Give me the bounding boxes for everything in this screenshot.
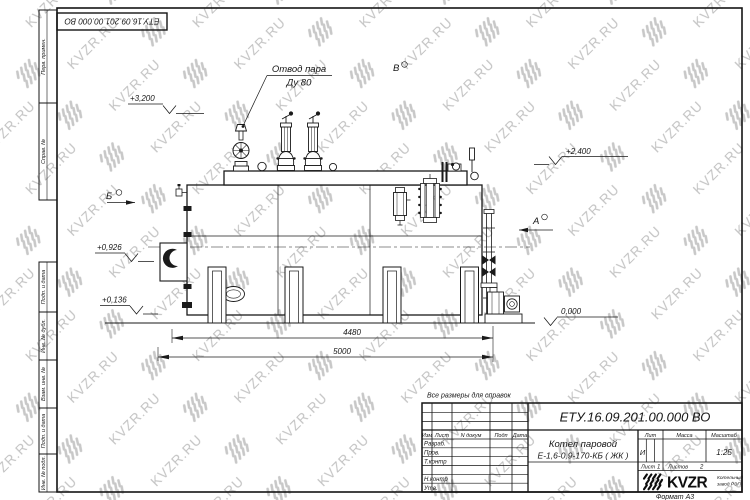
steam-outlet-valve	[233, 125, 249, 172]
role-utv: Утв.	[423, 486, 438, 492]
sheet-value: 1	[657, 465, 660, 471]
masshtab-label: Масштаб	[711, 433, 738, 439]
sheet-label: Лист	[640, 465, 656, 471]
view-marker-b: Б	[106, 190, 135, 205]
drawing-layer: Перв. примен. Справ. № Подп. и дата Инв.…	[0, 0, 750, 500]
view-a-arrow-icon	[519, 228, 528, 232]
dim-5000-label: 5000	[333, 347, 351, 356]
col-list: Лист	[434, 433, 450, 439]
product-type: Е-1,6-0,9-170-КБ ( ЖК )	[538, 451, 629, 461]
elevation-0136: +0,136	[100, 296, 158, 315]
margin-label-podp-data-2: Подп. и дата	[41, 414, 47, 448]
margin-label-perv-primen: Перв. примен.	[41, 38, 47, 75]
top-stamp: ЕТУ.16.09.201.00.000 ВО	[57, 13, 167, 30]
lit-value: И	[640, 448, 646, 457]
drum-vent-domes	[257, 162, 338, 171]
view-b-label: Б	[106, 191, 112, 202]
margin-label-inv-no-podl: Инв. № подл.	[41, 456, 47, 490]
role-razrab: Разраб.	[424, 442, 446, 448]
margin-column-labels: Перв. примен. Справ. № Подп. и дата Инв.…	[41, 38, 47, 490]
sheets-value: 2	[699, 465, 704, 471]
role-t-kontr: Т.контр	[424, 459, 447, 465]
kvzr-logo-icon	[644, 475, 662, 490]
steam-outlet-label-line2: Ду 80	[286, 78, 312, 89]
view-v-label: В	[393, 63, 400, 74]
col-data: Дата	[512, 433, 528, 439]
steam-outlet-callout: Отвод пара Ду 80	[242, 64, 332, 128]
kvzr-logo-sub1: Котельный	[717, 474, 743, 481]
title-block: ЕТУ.16.09.201.00.000 ВО Изм Лист N докум…	[422, 403, 743, 500]
elevation-0136-label: +0,136	[102, 296, 127, 305]
col-izm: Изм	[422, 433, 432, 439]
col-podp: Подп	[494, 433, 507, 439]
elevation-0000-label: 0,000	[561, 307, 582, 316]
dimension-4480: 4480	[158, 326, 493, 362]
support-leg-4	[461, 267, 479, 323]
elevation-0926-label: +0,926	[97, 243, 122, 252]
dim-4480-label: 4480	[343, 328, 361, 337]
role-prov: Пров.	[424, 451, 440, 457]
drawing-page: KVZR.RU	[0, 0, 750, 500]
title-block-doc-number: ЕТУ.16.09.201.00.000 ВО	[560, 410, 711, 425]
support-leg-2	[285, 267, 303, 323]
elevation-0000: 0,000	[544, 307, 618, 326]
support-leg-3	[383, 267, 401, 323]
dimension-5000: 5000	[158, 347, 493, 359]
burner	[160, 243, 187, 281]
elevation-0926: +0,926	[95, 243, 154, 262]
role-n-kontr: Н.контр	[424, 477, 448, 483]
format-label: Формат А3	[656, 494, 694, 500]
view-b-arrow-icon	[126, 200, 135, 204]
margin-label-podp-data-1: Подп. и дата	[41, 270, 47, 304]
safety-valve-1	[276, 111, 295, 170]
margin-label-vzam-inv-no: Взам. инв. №	[41, 367, 47, 401]
margin-label-sprav-no: Справ. №	[41, 139, 47, 164]
scale-value: 1:25	[716, 448, 732, 457]
lit-label: Лит	[644, 433, 657, 439]
top-stamp-doc-number: ЕТУ.16.09.201.00.000 ВО	[64, 17, 160, 26]
margin-label-inv-no-dubl: Инв. № дубл.	[41, 319, 47, 353]
feed-pump	[485, 288, 522, 324]
sheets-label: Листов	[667, 465, 688, 471]
kvzr-logo-sub2: завод РЭП	[716, 482, 741, 488]
view-marker-v: В	[393, 62, 407, 74]
elevation-3200: +3,200	[128, 94, 204, 114]
massa-label: Масса	[676, 433, 692, 439]
reference-note: Все размеры для справок	[427, 392, 512, 400]
elevation-2400: +2,400	[534, 147, 628, 165]
steam-outlet-label-line1: Отвод пара	[272, 64, 326, 75]
elevation-3200-label: +3,200	[130, 94, 155, 103]
view-a-label: А	[532, 216, 539, 227]
boiler-drawing	[105, 111, 535, 323]
annotations: Отвод пара Ду 80 +3,200 +2,400 +0,926 +0…	[95, 62, 628, 400]
safety-valve-2	[303, 111, 322, 170]
water-level-gauge-1	[394, 188, 411, 226]
elevation-2400-label: +2,400	[566, 147, 591, 156]
col-n-dokum: N докум	[461, 433, 482, 439]
view-marker-a: А	[519, 214, 553, 232]
support-leg-1	[208, 267, 226, 323]
kvzr-logo-text: KVZR	[667, 475, 708, 492]
product-name: Котел паровой	[549, 439, 618, 450]
